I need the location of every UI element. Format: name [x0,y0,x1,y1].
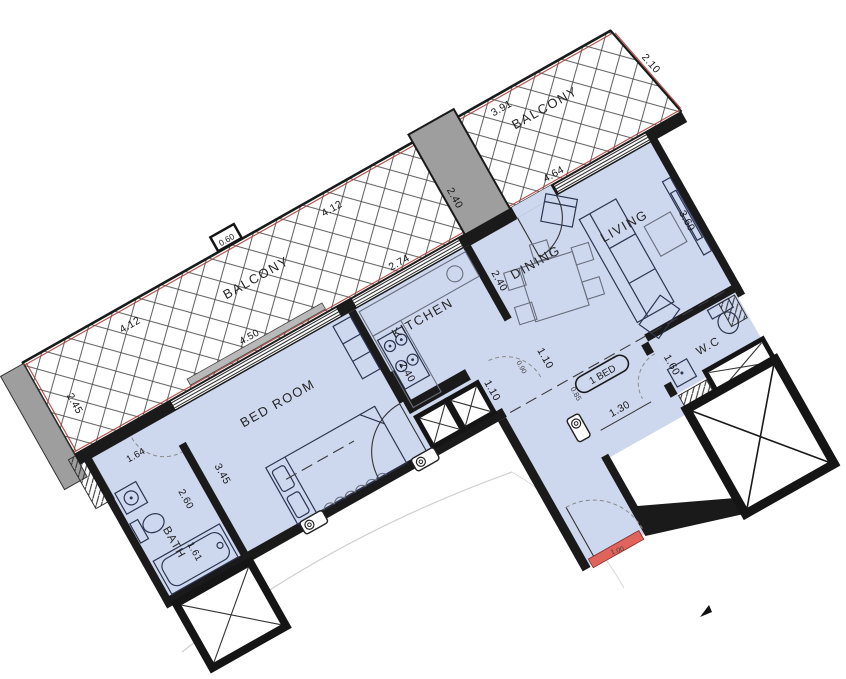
floorplan-drawing: 1 BED BALCONY BALCONY BED ROOM BATH KITC… [0,0,846,679]
rotated-plan: 1 BED BALCONY BALCONY BED ROOM BATH KITC… [0,3,846,679]
north-tick [700,605,712,617]
floorplan-page: 1 BED BALCONY BALCONY BED ROOM BATH KITC… [0,0,846,679]
